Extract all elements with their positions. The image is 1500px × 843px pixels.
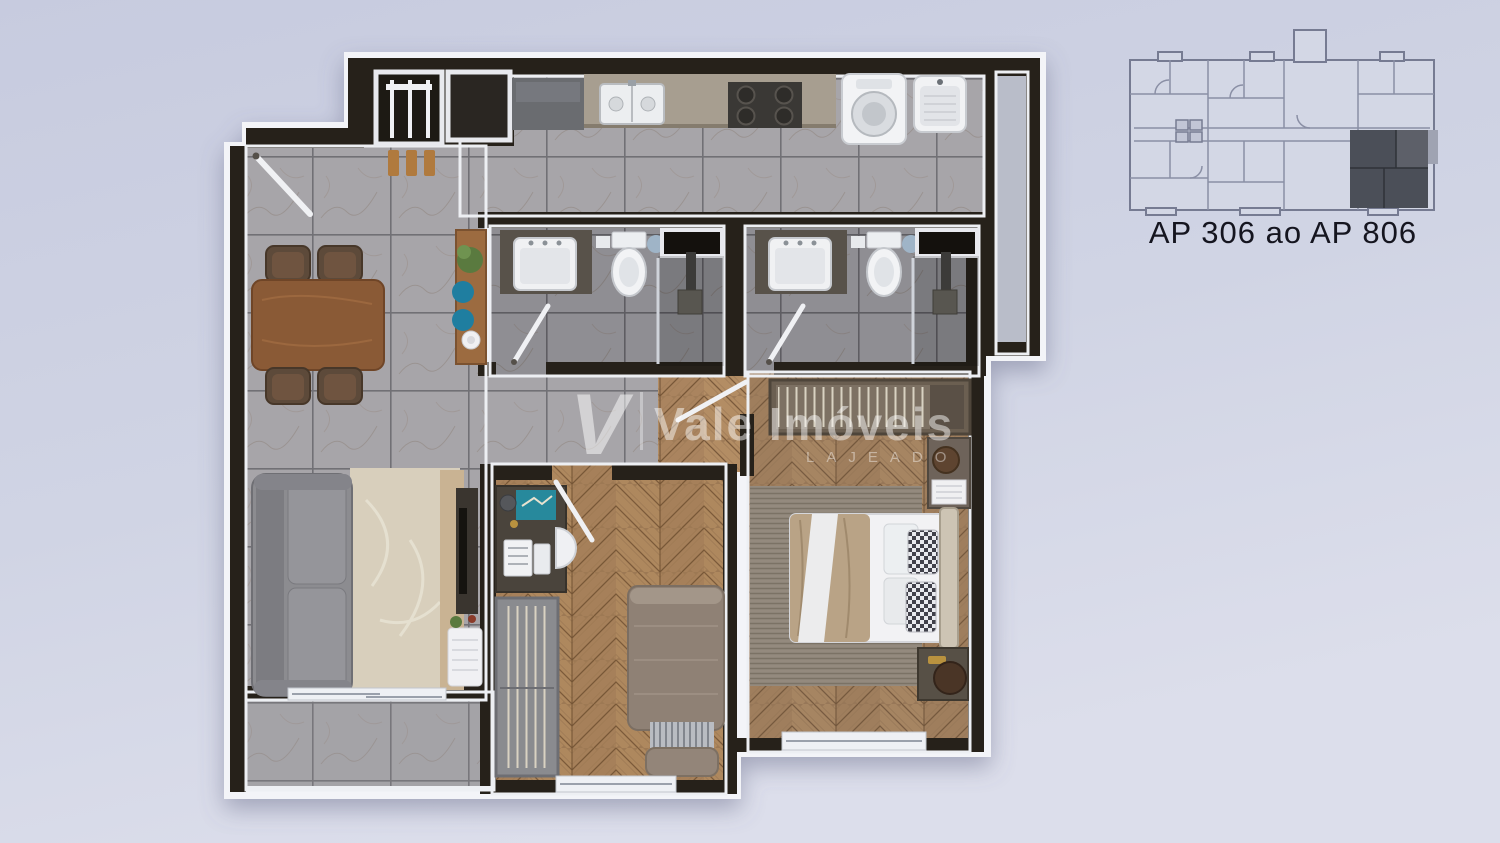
counter-shelf xyxy=(386,84,432,90)
apartment-plan: V Vale Imóveis LAJEADO xyxy=(224,52,1046,799)
entry-dark-niche xyxy=(448,72,510,140)
washing-machine xyxy=(842,74,906,144)
laundry-tub xyxy=(914,76,966,132)
double-bed xyxy=(790,508,958,648)
door-hinge xyxy=(511,359,517,365)
sofa xyxy=(252,474,352,696)
accent-pillow xyxy=(908,530,938,574)
wardrobe xyxy=(496,598,558,776)
nightstand-bottom xyxy=(918,648,968,700)
key-plan: AP 306 ao AP 806 xyxy=(1130,30,1438,250)
decor-plate xyxy=(452,309,474,331)
pillow xyxy=(646,748,718,776)
master-window xyxy=(782,732,926,750)
double-sink xyxy=(600,80,664,124)
bar-stool xyxy=(406,150,417,176)
floorplan-svg: V Vale Imóveis LAJEADO xyxy=(0,0,1500,843)
desk-clock xyxy=(500,495,516,511)
cooktop xyxy=(728,82,802,128)
dining-chair xyxy=(318,246,362,282)
paper-holder xyxy=(596,236,610,248)
accent-pillow xyxy=(906,582,936,632)
balcony-tint xyxy=(246,692,494,790)
decor xyxy=(468,615,476,623)
dining-chair xyxy=(318,368,362,404)
living-room xyxy=(252,468,482,696)
door-hinge xyxy=(253,153,260,160)
stool xyxy=(934,662,966,694)
floorplan-render: V Vale Imóveis LAJEADO xyxy=(0,0,1500,843)
bar-stool xyxy=(388,150,399,176)
bar-stool xyxy=(424,150,435,176)
tub-faucet xyxy=(937,79,943,85)
dining-chair xyxy=(266,368,310,404)
desk-trinket xyxy=(510,520,518,528)
fridge-top xyxy=(516,82,580,102)
key-plan-caption: AP 306 ao AP 806 xyxy=(1149,215,1417,250)
watermark-divider xyxy=(640,392,643,450)
shower-drain xyxy=(678,290,702,314)
watermark-city: LAJEADO xyxy=(806,449,958,466)
laptop-keyboard xyxy=(504,540,532,576)
service-shaft xyxy=(996,72,1028,354)
bathroom-sink xyxy=(514,238,576,290)
watermark-brand: Vale Imóveis xyxy=(654,398,954,450)
plant xyxy=(450,616,462,628)
dining-chair xyxy=(266,246,310,282)
dining-table xyxy=(252,280,384,370)
tv-screen xyxy=(459,508,467,594)
balcony-railing xyxy=(246,786,494,791)
bedroom2-window xyxy=(556,776,676,792)
toilet xyxy=(612,232,646,296)
watermark-logo: V xyxy=(570,377,634,473)
sideboard xyxy=(452,230,486,364)
shower-column xyxy=(686,252,696,290)
balcony-slider xyxy=(288,688,446,700)
decor-plate xyxy=(452,281,474,303)
laptop-lid xyxy=(534,544,550,574)
key-plan-highlight-unit xyxy=(1350,130,1438,208)
headboard xyxy=(940,508,958,648)
faucet xyxy=(628,80,636,86)
